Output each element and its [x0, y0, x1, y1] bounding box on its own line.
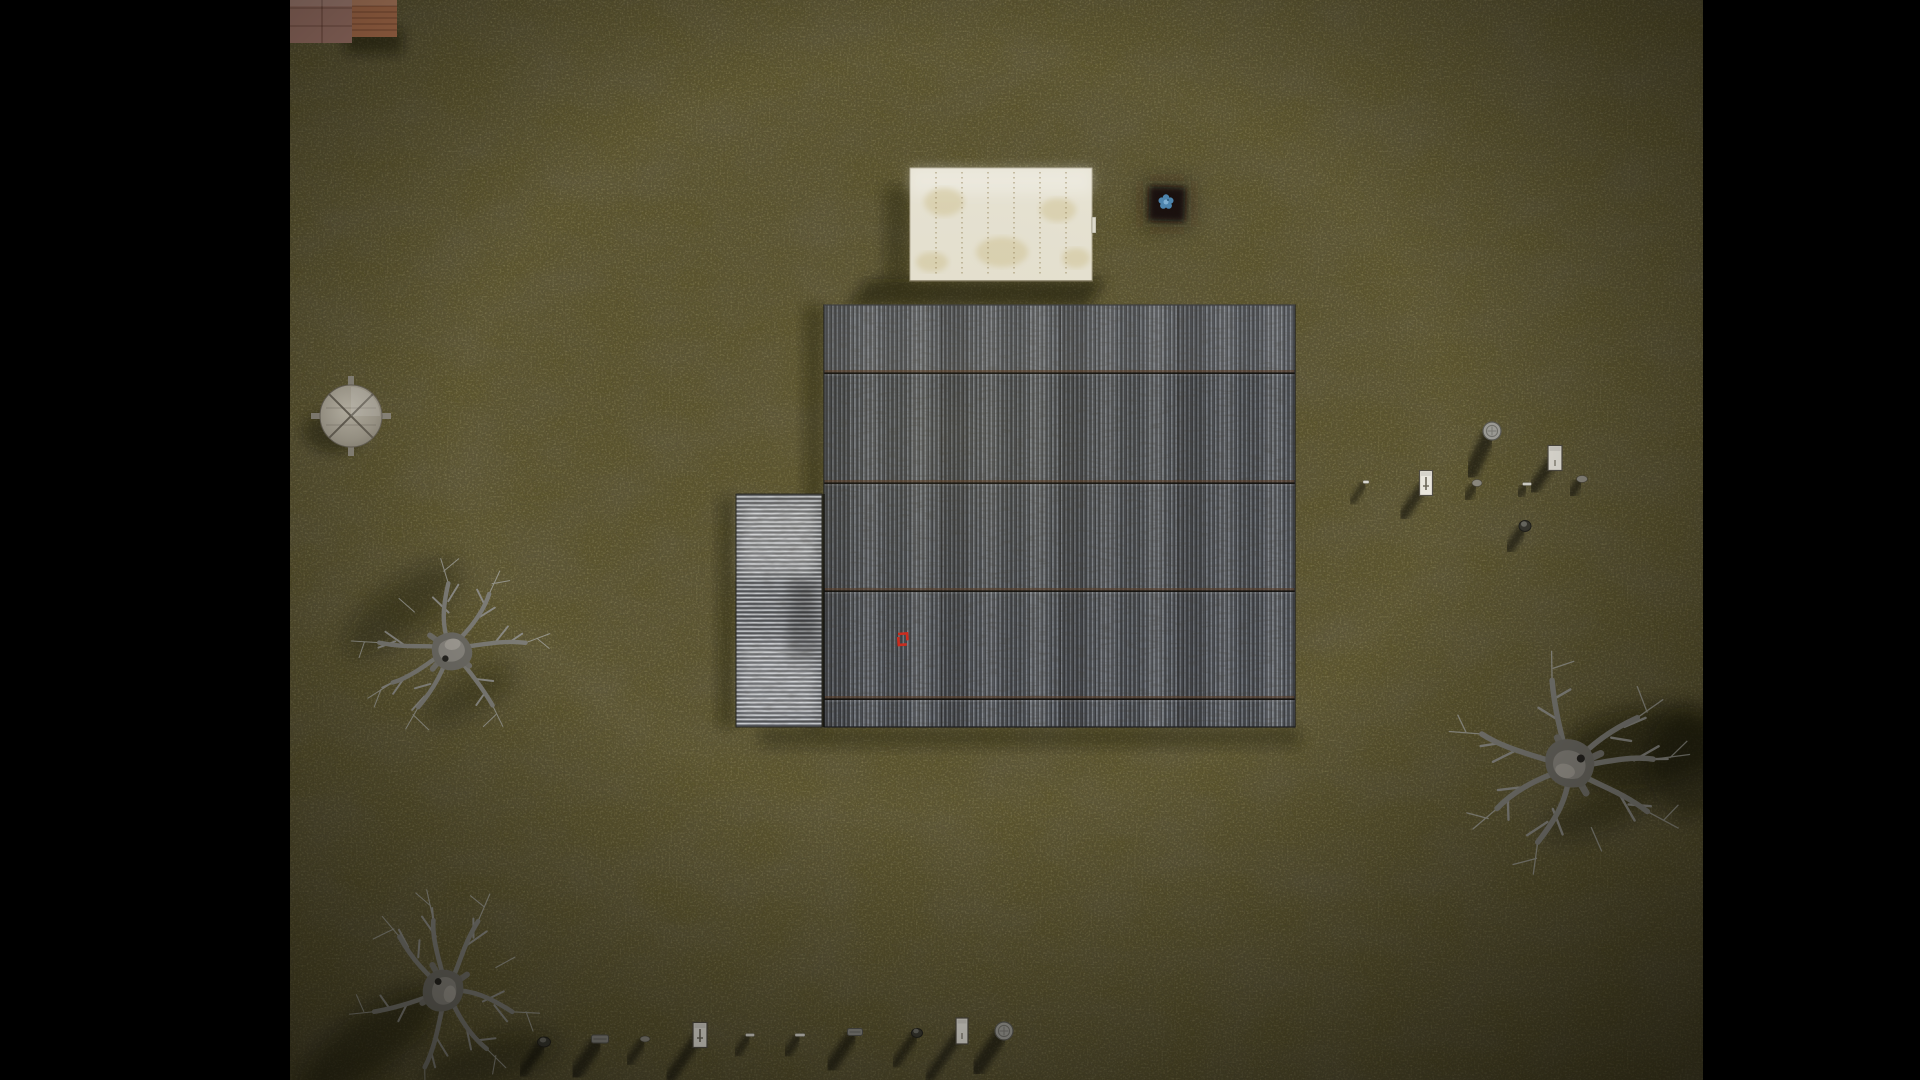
vignette-overlay [290, 0, 1703, 1080]
letterbox-right [1703, 0, 1920, 1080]
letterbox-left [0, 0, 290, 1080]
game-viewport[interactable] [0, 0, 1920, 1080]
game-screen [0, 0, 1920, 1080]
fx-layer [290, 0, 1703, 1080]
